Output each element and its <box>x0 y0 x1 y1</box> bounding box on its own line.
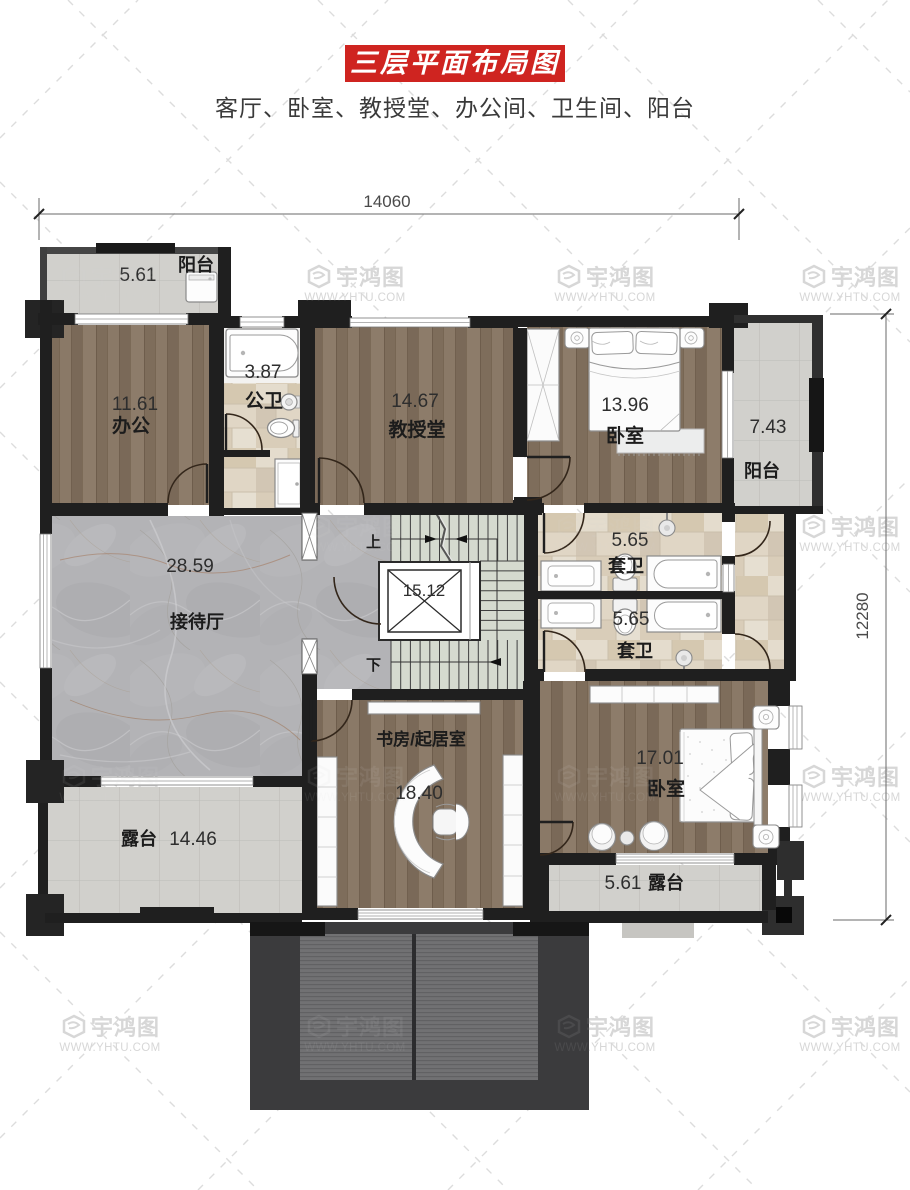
svg-text:14060: 14060 <box>363 192 410 211</box>
svg-text:14.46: 14.46 <box>169 829 217 850</box>
svg-text:15.12: 15.12 <box>403 581 446 600</box>
svg-text:11.61: 11.61 <box>112 394 158 415</box>
svg-text:14.67: 14.67 <box>391 391 439 412</box>
svg-text:阳台: 阳台 <box>744 460 780 481</box>
svg-text:13.96: 13.96 <box>601 395 649 416</box>
svg-text:露台: 露台 <box>648 872 684 893</box>
svg-text:下: 下 <box>366 657 381 674</box>
svg-text:书房/起居室: 书房/起居室 <box>376 729 466 749</box>
svg-text:教授堂: 教授堂 <box>388 418 445 441</box>
svg-text:露台: 露台 <box>121 828 157 849</box>
svg-text:客厅、卧室、教授堂、办公间、卫生间、阳台: 客厅、卧室、教授堂、办公间、卫生间、阳台 <box>215 95 695 121</box>
svg-text:阳台: 阳台 <box>178 254 214 275</box>
svg-text:3.87: 3.87 <box>245 362 282 383</box>
svg-text:套卫: 套卫 <box>608 555 644 576</box>
svg-text:卧室: 卧室 <box>606 424 644 447</box>
svg-text:7.43: 7.43 <box>750 417 787 438</box>
svg-text:5.61: 5.61 <box>605 873 642 894</box>
svg-text:办公: 办公 <box>112 414 150 437</box>
svg-text:28.59: 28.59 <box>166 556 214 577</box>
svg-text:三层平面布局图: 三层平面布局图 <box>350 48 561 78</box>
svg-text:公卫: 公卫 <box>245 390 283 412</box>
svg-text:12280: 12280 <box>853 592 872 639</box>
svg-text:接待厅: 接待厅 <box>170 611 224 632</box>
svg-text:套卫: 套卫 <box>617 640 653 661</box>
svg-text:5.65: 5.65 <box>613 609 650 630</box>
